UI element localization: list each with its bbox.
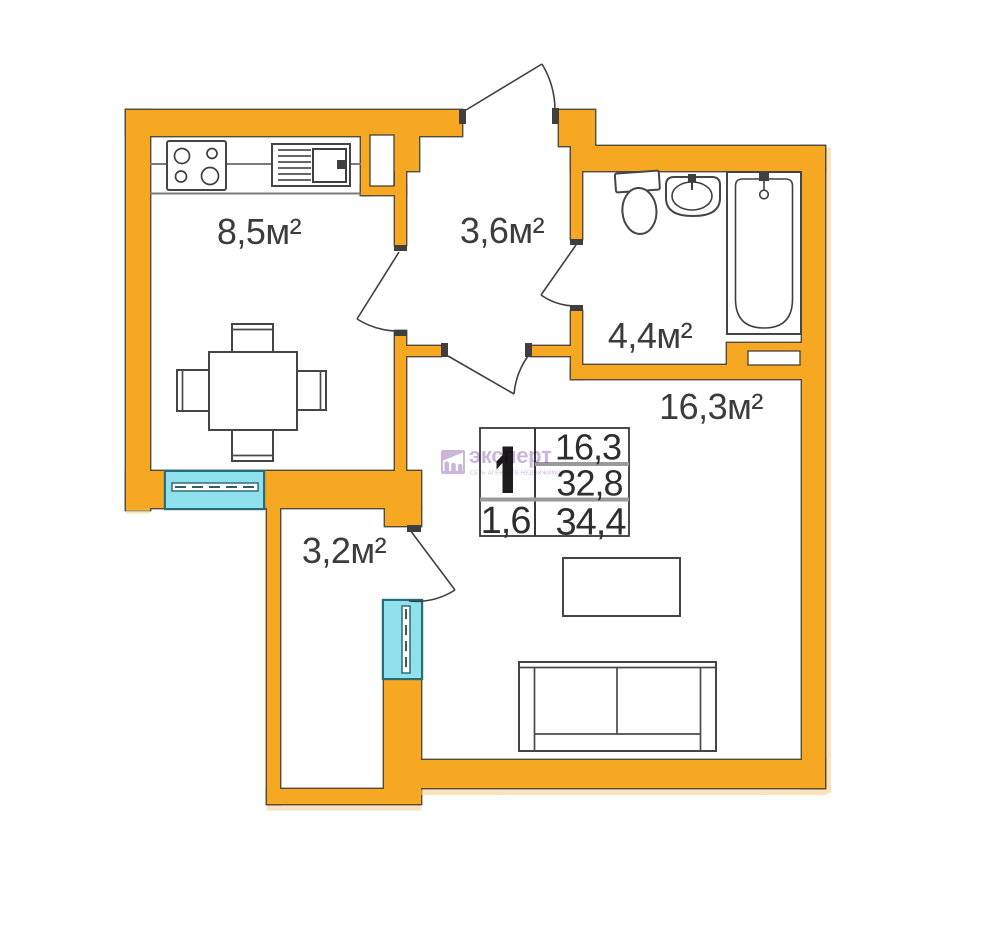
svg-text:4,4м²: 4,4м² xyxy=(608,315,693,356)
svg-text:34,4: 34,4 xyxy=(556,502,627,544)
svg-text:1,6: 1,6 xyxy=(481,500,531,542)
svg-text:8,5м²: 8,5м² xyxy=(217,211,302,252)
svg-text:3,2м²: 3,2м² xyxy=(302,530,387,571)
svg-text:СЕТЬ АГЕНТСТВ НЕДВИЖИМОСТИ: СЕТЬ АГЕНТСТВ НЕДВИЖИМОСТИ xyxy=(470,471,573,477)
svg-text:эксперт: эксперт xyxy=(469,443,552,468)
svg-text:16,3: 16,3 xyxy=(555,427,621,468)
svg-text:16,3м²: 16,3м² xyxy=(659,386,763,427)
svg-text:3,6м²: 3,6м² xyxy=(460,210,545,251)
svg-text:32,8: 32,8 xyxy=(556,463,622,504)
